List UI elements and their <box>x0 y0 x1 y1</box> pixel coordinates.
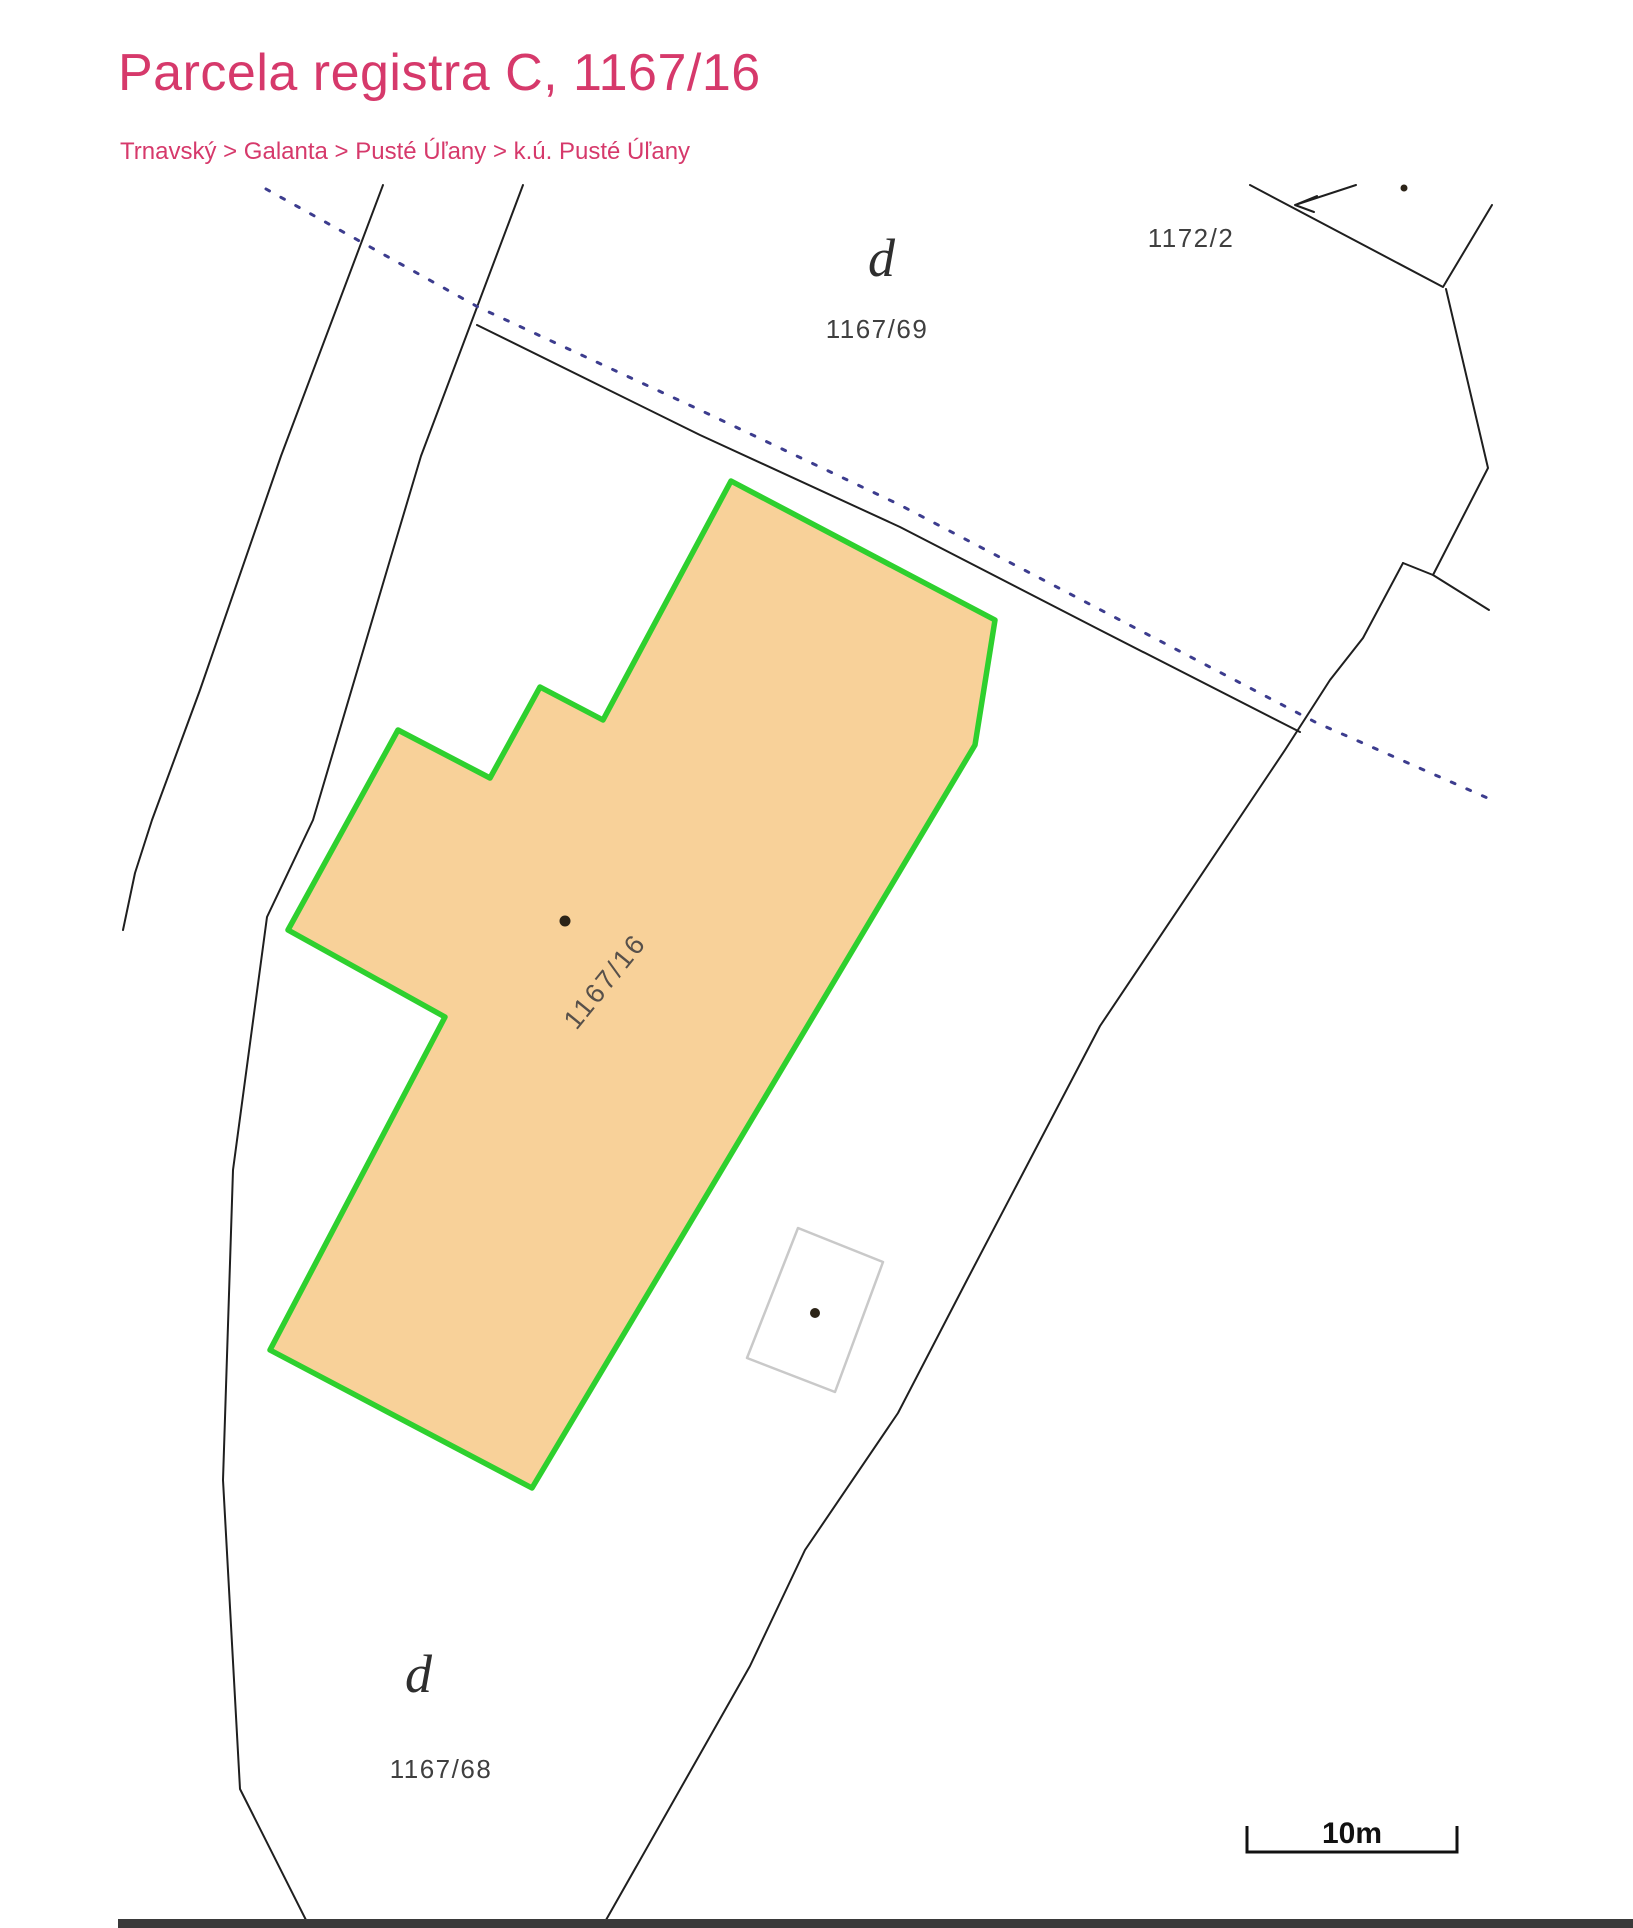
building-outline-v <box>1250 185 1492 287</box>
cadastral-map-canvas[interactable]: 1167/16 d 1167/69 1172/2 d 1167/68 10m <box>0 0 1633 1928</box>
parcel-label-1167-68: 1167/68 <box>390 1754 493 1784</box>
small-building-centroid-dot <box>810 1308 820 1318</box>
parcel-label-1167-69: 1167/69 <box>826 314 929 344</box>
building-outline-step <box>1403 289 1488 575</box>
parcel-centroid-dot <box>560 916 571 927</box>
building-outline-spur <box>1433 575 1489 610</box>
footer-strip <box>118 1919 1633 1928</box>
highlighted-parcel-1167-16[interactable] <box>270 481 995 1488</box>
land-use-symbol-bottom: d <box>405 1644 433 1704</box>
building-point-marker-topright <box>1401 185 1408 192</box>
parcel-label-1172-2: 1172/2 <box>1148 223 1235 253</box>
direction-arrow-icon <box>1295 185 1356 212</box>
parcel-boundary-left-outer <box>123 185 383 930</box>
scalebar-label: 10m <box>1322 1817 1382 1850</box>
land-use-symbol-top: d <box>868 228 896 288</box>
